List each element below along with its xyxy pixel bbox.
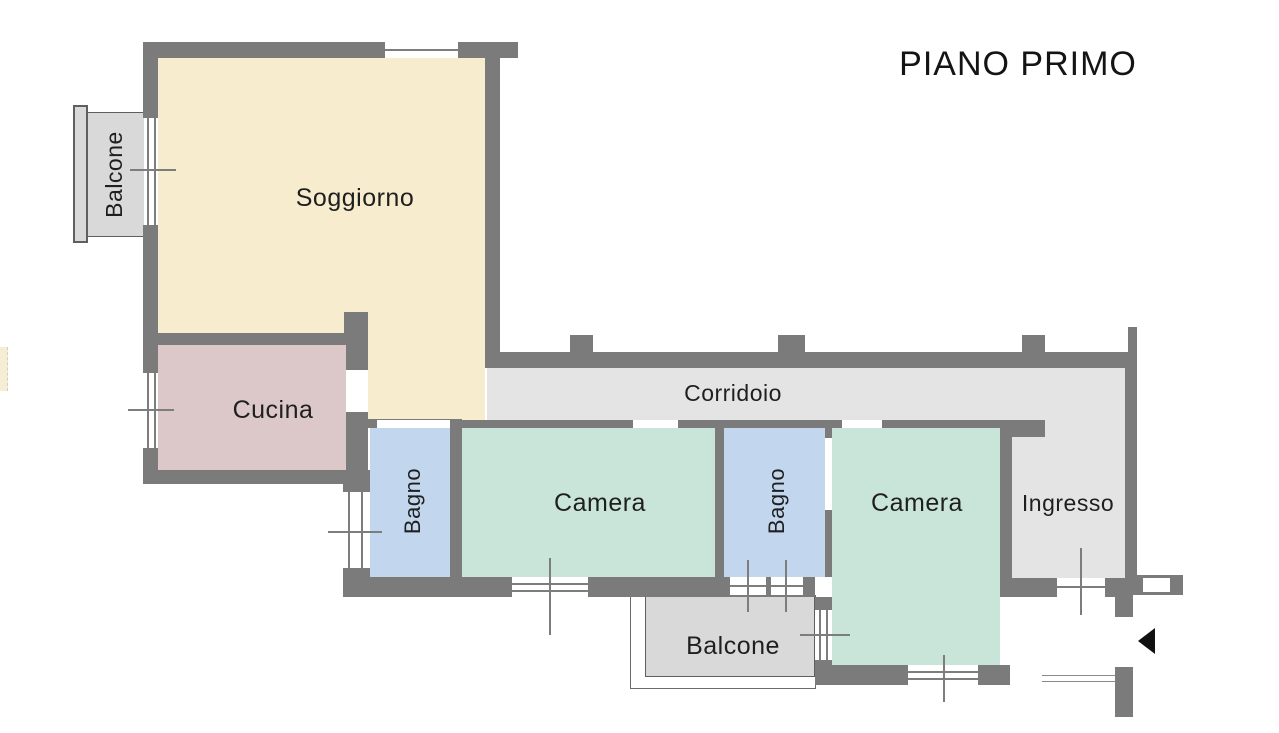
window-pane-line	[771, 585, 803, 587]
entrance-arrow-icon	[1138, 628, 1155, 654]
label-cucina: Cucina	[193, 395, 353, 425]
label-camera-2: Camera	[827, 488, 1007, 518]
room-soggiorno-leg	[368, 333, 485, 420]
window-tick-bagno2-a	[747, 560, 749, 612]
wall-cucina-bottom	[143, 470, 370, 484]
label-camera-1: Camera	[510, 488, 690, 518]
wall-stub-soggiorno	[344, 312, 368, 333]
door-right-extension	[1143, 578, 1170, 592]
door-tick-ingresso	[1080, 548, 1082, 615]
wall-corridor-bottom	[462, 420, 1045, 428]
edge-artifact	[0, 347, 8, 391]
floor-plan: PIANO PRIMO	[0, 0, 1279, 733]
label-ingresso: Ingresso	[998, 489, 1138, 517]
window-pane-line	[385, 49, 458, 51]
window-soggiorno-top	[385, 42, 458, 58]
window-tick-camera1	[549, 558, 551, 635]
room-camera-2	[832, 428, 1000, 665]
window-tick-camera2-bottom	[943, 655, 945, 702]
wall-top	[143, 42, 518, 58]
window-tick-bagno1	[328, 531, 382, 533]
wall-soggiorno-right	[485, 58, 500, 352]
wall-cucina-right-a	[346, 345, 368, 370]
label-balcone-bottom: Balcone	[653, 631, 813, 661]
door-soggiorno-bagno1	[377, 420, 450, 428]
wall-cucina-left-a	[143, 345, 158, 373]
wall-pillar-1	[570, 335, 593, 352]
window-balcony-door	[144, 118, 158, 225]
window-bagno2-b	[771, 577, 803, 595]
wall-bagno1-left-a	[343, 484, 370, 492]
wall-bagno1-camera1	[450, 427, 462, 577]
window-pane-line	[361, 492, 363, 568]
window-pane-line	[348, 492, 350, 568]
label-corridoio: Corridoio	[653, 379, 813, 407]
door-entrance	[1115, 617, 1133, 667]
wall-soggiorno-cucina	[143, 333, 368, 345]
window-bagno1-left	[343, 492, 368, 568]
plan-title: PIANO PRIMO	[893, 40, 1143, 88]
door-corridor-camera2	[842, 420, 882, 428]
window-pane-line	[147, 118, 149, 225]
wall-camera1-bagno2	[715, 427, 724, 577]
wall-corridor-top	[485, 352, 1137, 368]
label-bagno-1: Bagno	[383, 441, 443, 561]
stair-line	[1042, 681, 1115, 682]
window-tick-cucina	[128, 409, 174, 411]
wall-pillar-3	[1022, 335, 1045, 352]
stair-line	[1042, 675, 1115, 676]
wall-left-upper	[143, 42, 158, 118]
label-balcone-top-left: Balcone	[84, 109, 144, 239]
window-pane-line	[154, 118, 156, 225]
label-bagno-2: Bagno	[747, 441, 807, 561]
label-soggiorno: Soggiorno	[255, 183, 455, 213]
wall-stub-top-right	[1128, 327, 1137, 352]
wall-corridor-right	[1125, 352, 1137, 580]
wall-left-mid	[143, 225, 158, 333]
window-tick-bagno2-b	[785, 560, 787, 612]
wall-pillar-2	[778, 335, 805, 352]
wall-bagno1-left-b	[343, 568, 370, 577]
door-corridor-camera1	[633, 420, 678, 428]
